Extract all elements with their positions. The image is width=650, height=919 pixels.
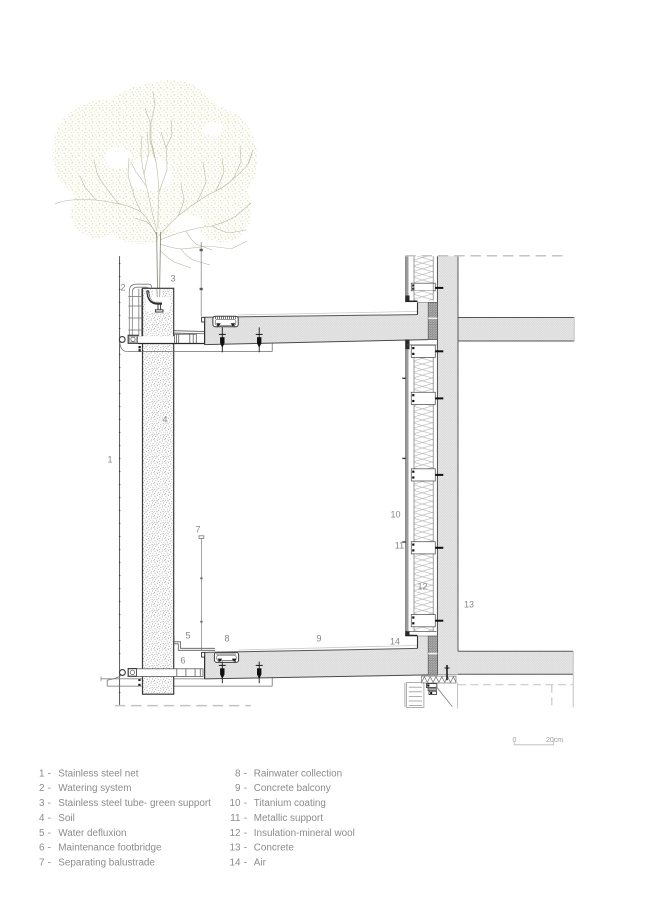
svg-text:Watering system: Watering system [58, 783, 131, 794]
svg-text:Concrete balcony: Concrete balcony [254, 783, 331, 794]
svg-text:Soil: Soil [58, 813, 74, 824]
svg-text:Titanium coating: Titanium coating [254, 798, 326, 809]
svg-text:Air: Air [254, 858, 267, 869]
svg-text:3: 3 [171, 274, 176, 284]
svg-text:11: 11 [230, 813, 241, 824]
svg-text:2: 2 [121, 283, 126, 293]
svg-text:-: - [244, 828, 247, 839]
svg-text:-: - [48, 813, 51, 824]
svg-text:7: 7 [39, 858, 45, 869]
svg-text:9: 9 [317, 634, 322, 644]
svg-text:-: - [244, 768, 247, 779]
svg-text:-: - [48, 768, 51, 779]
svg-text:9: 9 [235, 783, 241, 794]
svg-text:-: - [48, 798, 51, 809]
svg-text:Maintenance footbridge: Maintenance footbridge [58, 843, 162, 854]
svg-text:4: 4 [163, 415, 168, 425]
svg-text:8: 8 [225, 634, 230, 644]
svg-text:14: 14 [230, 858, 241, 869]
svg-text:-: - [48, 783, 51, 794]
svg-text:12: 12 [418, 582, 428, 592]
svg-text:5: 5 [39, 828, 45, 839]
svg-text:5: 5 [186, 631, 191, 641]
svg-text:8: 8 [235, 768, 241, 779]
svg-text:7: 7 [196, 525, 201, 535]
svg-text:14: 14 [390, 637, 400, 647]
svg-text:11: 11 [395, 541, 404, 551]
svg-text:13: 13 [230, 843, 241, 854]
svg-text:2: 2 [39, 783, 45, 794]
svg-text:-: - [48, 828, 51, 839]
svg-text:Stainless steel tube- green su: Stainless steel tube- green support [58, 798, 211, 809]
svg-text:6: 6 [181, 656, 186, 666]
svg-text:3: 3 [39, 798, 45, 809]
svg-text:Metallic support: Metallic support [254, 813, 323, 824]
svg-text:4: 4 [39, 813, 45, 824]
svg-text:-: - [244, 783, 247, 794]
svg-text:1: 1 [39, 768, 45, 779]
svg-text:Separating balustrade: Separating balustrade [58, 858, 155, 869]
svg-text:1: 1 [108, 455, 113, 465]
svg-text:-: - [244, 858, 247, 869]
svg-text:20cm: 20cm [546, 737, 563, 744]
svg-text:Stainless steel net: Stainless steel net [58, 768, 138, 779]
svg-text:-: - [244, 798, 247, 809]
svg-text:Insulation-mineral wool: Insulation-mineral wool [254, 828, 355, 839]
svg-text:Rainwater collection: Rainwater collection [254, 768, 342, 779]
svg-text:Concrete: Concrete [254, 843, 295, 854]
svg-text:13: 13 [464, 600, 474, 610]
svg-text:10: 10 [391, 510, 401, 520]
svg-text:-: - [244, 843, 247, 854]
svg-text:10: 10 [230, 798, 241, 809]
svg-text:-: - [244, 813, 247, 824]
svg-text:12: 12 [230, 828, 241, 839]
svg-text:Water defluxion: Water defluxion [58, 828, 126, 839]
svg-text:-: - [48, 843, 51, 854]
svg-text:-: - [48, 858, 51, 869]
svg-text:6: 6 [39, 843, 45, 854]
